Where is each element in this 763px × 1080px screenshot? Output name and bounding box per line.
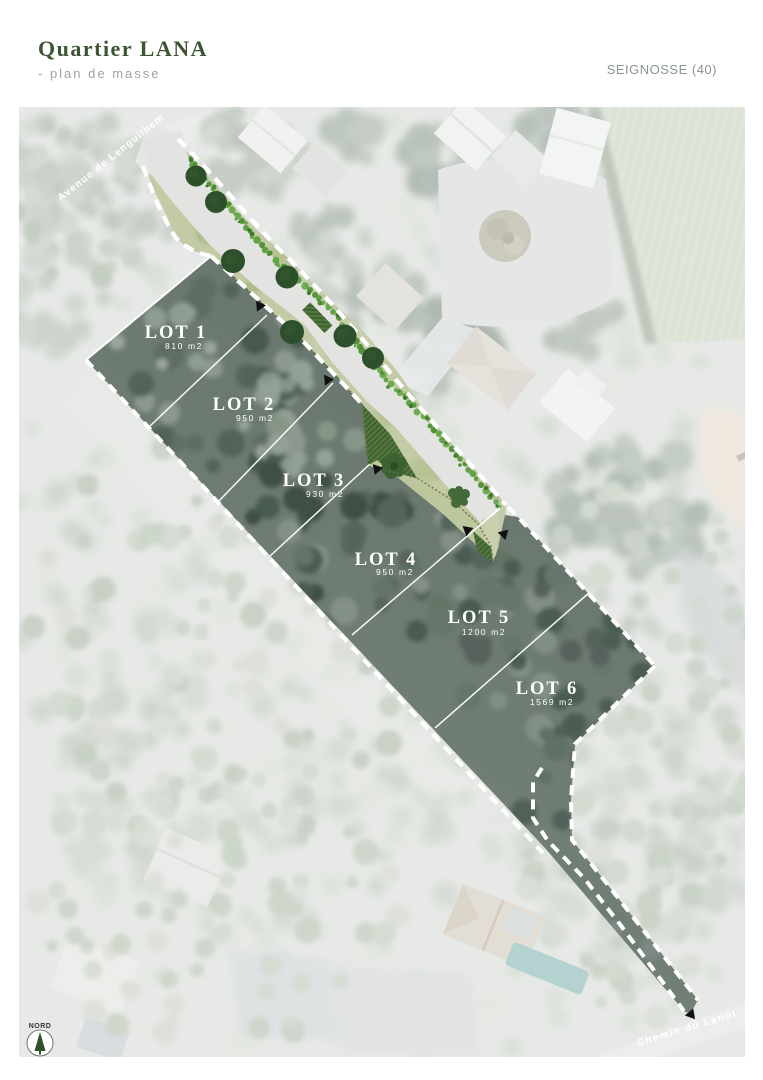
- svg-text:1569 m2: 1569 m2: [530, 697, 574, 707]
- svg-text:950 m2: 950 m2: [236, 413, 274, 423]
- svg-text:LOT 2: LOT 2: [213, 395, 276, 415]
- svg-text:1200 m2: 1200 m2: [462, 627, 506, 637]
- svg-text:930 m2: 930 m2: [306, 489, 344, 499]
- svg-text:950 m2: 950 m2: [376, 567, 414, 577]
- svg-text:LOT 1: LOT 1: [145, 323, 208, 343]
- svg-text:810 m2: 810 m2: [165, 341, 203, 351]
- svg-text:LOT 5: LOT 5: [448, 608, 511, 628]
- svg-text:NORD: NORD: [29, 1023, 52, 1030]
- svg-text:LOT 3: LOT 3: [283, 471, 346, 491]
- svg-text:LOT 6: LOT 6: [516, 679, 579, 699]
